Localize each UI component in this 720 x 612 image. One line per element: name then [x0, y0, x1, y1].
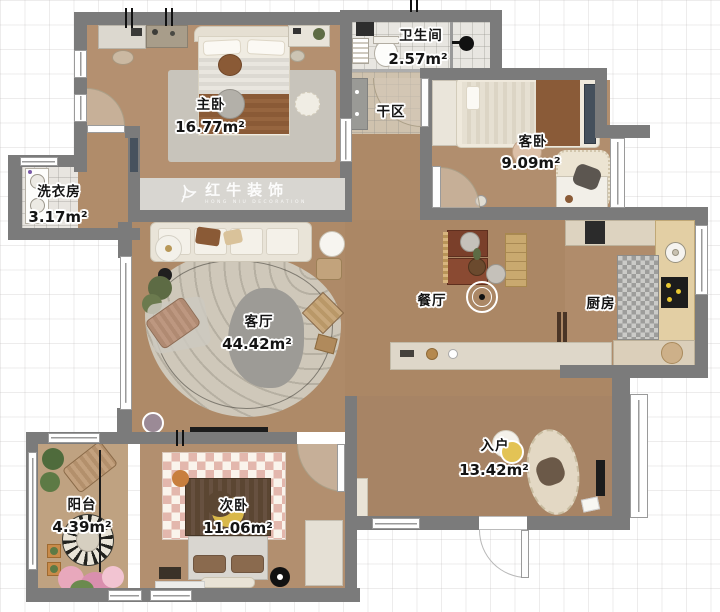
entry-door-arc	[479, 530, 527, 578]
wall	[74, 122, 87, 172]
window	[108, 590, 142, 601]
decor-dot	[152, 29, 158, 35]
burner-dot	[676, 289, 681, 294]
washer-column	[352, 38, 369, 64]
shower-divider	[450, 22, 453, 70]
side-table	[316, 258, 342, 280]
decor-dot	[170, 31, 175, 36]
bowl-icon	[448, 349, 458, 359]
pillow	[203, 39, 242, 56]
sofa-throw	[195, 226, 221, 246]
planter-green	[50, 547, 58, 555]
dark-bench	[159, 567, 181, 579]
shag-rug	[295, 92, 320, 116]
guest-pillow	[466, 86, 480, 110]
pink-flowers	[102, 566, 124, 588]
window	[20, 157, 58, 166]
room-label-second: 次卧	[220, 494, 249, 514]
tatami-mat	[505, 233, 527, 287]
wall	[490, 10, 502, 72]
speaker-center	[277, 574, 283, 580]
door-leaf	[421, 78, 429, 127]
master-cabinet	[146, 25, 188, 48]
burner-dot	[667, 297, 672, 302]
wall	[26, 588, 360, 602]
wall	[345, 396, 357, 602]
wall	[420, 68, 607, 80]
watermark-subtitle: HONG NIU DECORATION	[205, 200, 307, 205]
window	[695, 225, 708, 295]
window	[610, 138, 625, 208]
window	[372, 518, 420, 529]
purple-pouf	[142, 412, 164, 434]
balcony-slider-door	[48, 433, 100, 443]
window	[28, 452, 37, 570]
entry-console	[596, 460, 605, 496]
wall	[125, 126, 140, 138]
orange-ball	[172, 470, 189, 487]
sink-drain	[672, 249, 679, 256]
window	[74, 94, 87, 122]
pillow	[247, 39, 286, 56]
dimension-tick	[131, 8, 133, 28]
door-leaf	[337, 444, 345, 492]
wall	[612, 378, 630, 518]
master-bed-sheet	[199, 58, 289, 94]
dining-chair	[486, 264, 506, 284]
plant-icon	[313, 28, 325, 40]
sofa-cushion	[266, 228, 299, 255]
cooktop-icon	[661, 277, 688, 308]
dimension-tick	[125, 8, 127, 28]
wall	[595, 68, 607, 128]
shelf-strip	[563, 312, 567, 342]
room-label-dryzone: 干区	[377, 100, 406, 120]
lamp-center	[165, 245, 172, 252]
floor-plan: 红牛装饰 HONG NIU DECORATION 主卧 16.77m² 洗衣房 …	[0, 0, 720, 612]
cabinet-knob	[355, 90, 359, 94]
master-desk-chair	[112, 50, 134, 65]
dimension-tick	[416, 0, 418, 12]
door-leaf	[432, 166, 441, 208]
room-label-master: 主卧	[197, 93, 226, 113]
dimension-tick	[165, 8, 167, 26]
room-label-dining: 餐厅	[418, 289, 447, 309]
room-area-balcony: 4.39m²	[52, 518, 111, 536]
wall	[595, 125, 650, 138]
wall	[340, 10, 352, 118]
wall	[128, 210, 345, 222]
door-leaf	[87, 125, 125, 133]
ceiling-fan-hub	[479, 294, 485, 300]
window	[120, 256, 132, 410]
burner-dot	[666, 283, 671, 288]
detergent-dot	[28, 170, 32, 174]
room-area-entry: 13.42m²	[459, 461, 529, 479]
room-label-kitchen: 厨房	[587, 292, 616, 312]
room-label-entry: 入户	[481, 434, 510, 454]
wardrobe-watermark-band: 红牛装饰 HONG NIU DECORATION	[140, 178, 345, 210]
basket-icon	[661, 342, 683, 364]
room-area-master: 16.77m²	[175, 118, 245, 136]
bull-icon	[178, 184, 198, 204]
dimension-tick	[410, 0, 412, 12]
guest-wardrobe	[432, 80, 457, 146]
shower-head-icon	[459, 36, 474, 51]
basket-icon	[426, 348, 438, 360]
wall	[560, 365, 707, 378]
bed-bench	[201, 577, 255, 588]
room-label-balcony: 阳台	[68, 493, 97, 513]
desk-item	[565, 195, 573, 203]
kitchen-mat	[617, 255, 659, 340]
planter-green	[50, 565, 58, 573]
window	[74, 50, 87, 78]
wall	[74, 12, 352, 25]
wall	[74, 78, 87, 94]
round-pillow	[218, 54, 242, 76]
entry-door-leaf	[521, 530, 529, 578]
wall	[340, 10, 502, 22]
planter-icon	[468, 258, 486, 276]
window	[630, 394, 648, 518]
laptop-icon	[131, 28, 142, 36]
mirror-panel	[130, 132, 138, 172]
watermark-title: 红牛装饰	[205, 183, 307, 198]
bench-strip	[443, 232, 448, 283]
wall	[74, 25, 87, 50]
door-gap	[479, 516, 527, 530]
second-pillow	[193, 555, 226, 573]
room-area-laundry: 3.17m²	[28, 208, 87, 226]
room-area-guest: 9.09m²	[501, 154, 560, 172]
room-label-guest: 客卧	[519, 130, 548, 150]
plant-sprig	[473, 248, 481, 260]
dimension-tick	[176, 430, 178, 446]
vanity-item	[293, 28, 301, 34]
egg-chair	[319, 231, 345, 257]
wall	[118, 222, 132, 258]
plant-icon	[42, 448, 64, 470]
cabinet-knob	[355, 112, 359, 116]
room-label-bathroom: 卫生间	[399, 24, 443, 44]
toilet-tank	[373, 36, 399, 44]
room-label-living: 客厅	[245, 310, 274, 330]
dimension-tick	[182, 430, 184, 446]
window	[150, 590, 192, 601]
plant-icon	[40, 472, 60, 492]
shelf-strip	[557, 312, 561, 342]
room-area-bathroom: 2.57m²	[388, 50, 447, 68]
door-gap	[297, 432, 345, 444]
dimension-tick	[171, 8, 173, 26]
room-area-second: 11.06m²	[203, 519, 273, 537]
bath-cabinet-dark	[356, 22, 374, 36]
room-area-living: 44.42m²	[222, 335, 292, 353]
kitchen-appliance	[585, 221, 605, 244]
second-pillow	[231, 555, 264, 573]
vanity-stool	[290, 50, 305, 62]
wall	[420, 207, 707, 220]
room-label-laundry: 洗衣房	[37, 180, 81, 200]
window	[340, 118, 352, 162]
clothes-rail	[99, 450, 101, 572]
sideboard-item	[400, 350, 414, 357]
second-wardrobe	[305, 520, 343, 586]
